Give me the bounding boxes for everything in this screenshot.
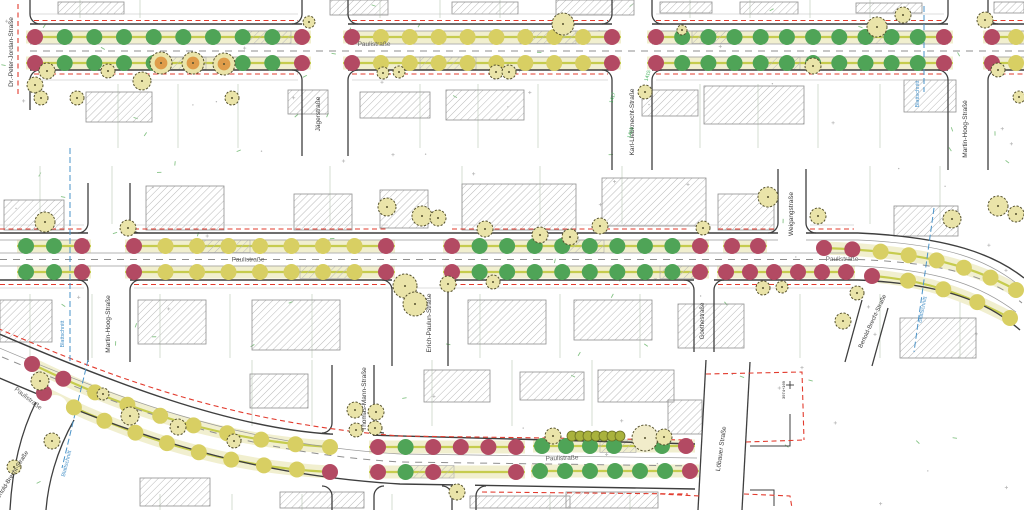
planting-spot-yellow	[159, 435, 175, 451]
planting-spot-red	[480, 439, 496, 455]
planting-spot-green	[86, 29, 102, 45]
tree-icon	[991, 63, 1005, 77]
survey-point	[898, 168, 899, 169]
planting-spot-red	[682, 463, 698, 479]
planting-spot-yellow	[315, 238, 331, 254]
tree-icon	[895, 7, 911, 23]
planting-spot-green	[532, 463, 548, 479]
tree-icon	[225, 91, 239, 105]
planting-spot-red	[444, 238, 460, 254]
tree-icon	[182, 52, 204, 74]
planting-spot-red	[378, 264, 394, 280]
planting-spot-green	[700, 55, 716, 71]
survey-cross-gray	[391, 153, 394, 156]
site-plan-drawing: PaulistraßePaulistraßePaulistraßePaulist…	[0, 0, 1024, 510]
planting-spot-red	[425, 464, 441, 480]
planting-spot-green	[831, 55, 847, 71]
parcel-number-label: 1415	[644, 69, 653, 82]
tree-icon	[696, 221, 710, 235]
building-footprint	[660, 2, 712, 13]
tree-icon	[810, 208, 826, 224]
building-footprint	[252, 300, 340, 350]
station-chainage-label: 3974+169	[781, 380, 786, 399]
building-footprint	[58, 2, 124, 14]
planting-spot-red	[984, 29, 1000, 45]
building-footprint	[740, 2, 798, 14]
planting-spot-green	[116, 55, 132, 71]
planting-spot-yellow	[956, 260, 972, 276]
planting-spot-yellow	[289, 462, 305, 478]
survey-cross-gray	[380, 81, 383, 84]
building-footprint	[146, 186, 224, 230]
street-label-paulistrasse: Paulistraße	[232, 257, 265, 264]
planting-spot-red	[74, 264, 90, 280]
planting-spot-green	[805, 29, 821, 45]
building-footprint	[250, 374, 308, 408]
planting-spot-red	[838, 264, 854, 280]
planting-spot-red	[790, 264, 806, 280]
curb-corner	[30, 14, 40, 24]
survey-tick-green	[958, 52, 960, 56]
tree-icon	[592, 218, 608, 234]
street-label-thomas-mann-strasse: Thomas-Mann-Straße	[361, 367, 368, 431]
survey-tick-green	[740, 376, 744, 378]
survey-point	[927, 470, 928, 471]
planting-spot-green	[637, 238, 653, 254]
survey-cross-gray	[77, 296, 80, 299]
planting-spot-yellow	[431, 29, 447, 45]
parcel-number-label: 1417	[609, 91, 618, 104]
planting-spot-green	[910, 29, 926, 45]
planting-spot-yellow	[488, 29, 504, 45]
survey-point	[425, 154, 426, 155]
building-footprint	[900, 318, 976, 358]
survey-point	[192, 104, 193, 105]
planting-spot-red	[378, 238, 394, 254]
survey-tick-green	[101, 47, 105, 49]
planting-spot-red	[27, 29, 43, 45]
planting-spot-red	[370, 439, 386, 455]
tree-icon	[502, 65, 516, 79]
planting-spot-yellow	[221, 238, 237, 254]
building-footprint	[360, 92, 430, 118]
planting-spot-yellow	[315, 264, 331, 280]
tree-icon	[31, 372, 49, 390]
planting-spot-red	[936, 29, 952, 45]
survey-cross-gray	[1001, 127, 1004, 130]
street-label-dr-peter-jordan-strasse: Dr.-Peter-Jordan-Straße	[8, 17, 15, 87]
curb-corner	[292, 70, 302, 80]
tree-icon	[39, 63, 55, 79]
building-footprint	[446, 90, 524, 120]
tree-icon	[403, 292, 427, 316]
planting-spot-red	[24, 356, 40, 372]
planting-spot-green	[235, 29, 251, 45]
planting-spot-yellow	[1008, 29, 1024, 45]
survey-cross-gray	[719, 45, 722, 48]
planting-spot-green	[398, 439, 414, 455]
street-label-paulistrasse: Paulistraße	[358, 41, 391, 48]
planting-spot-red	[294, 55, 310, 71]
building-footprint	[280, 492, 364, 508]
tree-icon	[368, 404, 384, 420]
planting-spot-green	[499, 238, 515, 254]
planting-spot-green	[607, 463, 623, 479]
planting-spot-green	[753, 29, 769, 45]
planting-spot-green	[116, 29, 132, 45]
planting-spot-yellow	[223, 452, 239, 468]
tree-icon	[412, 206, 432, 226]
tree-icon	[656, 429, 672, 445]
building-footprint	[288, 90, 328, 114]
tree-icon	[562, 229, 578, 245]
planting-spot-yellow	[873, 244, 889, 260]
curb-corner	[476, 486, 486, 496]
planting-spot-yellow	[253, 432, 269, 448]
tree-icon	[44, 433, 60, 449]
curb-corner	[806, 223, 816, 233]
survey-point	[700, 295, 701, 296]
planting-spot-red	[322, 464, 338, 480]
tree-icon	[850, 286, 864, 300]
road-line	[750, 490, 774, 506]
planting-spot-red	[816, 240, 832, 256]
survey-cross-gray	[472, 172, 475, 175]
tree-icon	[977, 12, 993, 28]
site-plan-canvas: PaulistraßePaulistraßePaulistraßePaulist…	[0, 0, 1024, 510]
planting-spot-green	[632, 463, 648, 479]
building-footprint	[994, 2, 1024, 13]
planting-spot-yellow	[969, 294, 985, 310]
planting-spot-red	[126, 238, 142, 254]
sheet-cut-label: Blattschnitt	[61, 450, 73, 478]
survey-tick-green	[1006, 160, 1009, 163]
planting-spot-green	[910, 55, 926, 71]
building-footprint	[140, 478, 210, 506]
planting-spot-green	[86, 55, 102, 71]
survey-point	[772, 83, 773, 84]
survey-tick-green	[332, 53, 336, 54]
survey-tick-green	[578, 352, 580, 356]
tree-icon	[213, 53, 235, 75]
survey-tick-green	[37, 481, 41, 483]
curb-corner	[602, 14, 612, 24]
survey-tick-green	[953, 438, 957, 439]
planting-spot-green	[657, 463, 673, 479]
building-footprint	[566, 492, 658, 508]
planting-spot-red	[742, 264, 758, 280]
survey-tick-green	[295, 114, 298, 117]
planting-spot-green	[398, 464, 414, 480]
planting-spot-green	[205, 29, 221, 45]
plan-limit-red-dashed	[744, 494, 792, 508]
planting-spot-red	[294, 29, 310, 45]
tree-icon	[378, 198, 396, 216]
planting-spot-red	[766, 264, 782, 280]
tree-icon	[1008, 206, 1024, 222]
survey-tick-green	[611, 294, 613, 298]
planting-spot-red	[508, 464, 524, 480]
tree-icon	[638, 85, 652, 99]
tree-icon	[1013, 91, 1024, 103]
street-label-weigangstrasse: Weigangstraße	[788, 192, 795, 236]
survey-tick-green	[858, 26, 862, 27]
survey-tick-green	[402, 398, 406, 399]
tree-icon	[486, 275, 500, 289]
planting-spot-red	[936, 55, 952, 71]
planting-spot-green	[779, 55, 795, 71]
planting-spot-yellow	[288, 436, 304, 452]
planting-spot-yellow	[322, 439, 338, 455]
planting-spot-green	[46, 264, 62, 280]
survey-cross-gray	[620, 419, 623, 422]
planting-spot-yellow	[252, 264, 268, 280]
tree-icon	[368, 421, 382, 435]
tree-icon	[677, 25, 687, 35]
building-footprint	[0, 300, 52, 342]
planting-spot-red	[453, 439, 469, 455]
planting-spot-yellow	[1008, 282, 1024, 298]
plan-limit-red-dashed	[746, 440, 804, 442]
building-footprint	[678, 304, 744, 348]
planting-spot-yellow	[575, 55, 591, 71]
planting-spot-green	[664, 238, 680, 254]
curb-corner	[374, 486, 384, 496]
planting-spot-yellow	[284, 264, 300, 280]
road-line	[742, 362, 750, 510]
tree-icon	[758, 187, 778, 207]
survey-point	[216, 101, 217, 102]
planting-spot-yellow	[158, 264, 174, 280]
tree-icon	[943, 210, 961, 228]
survey-tick-green	[135, 323, 136, 327]
tree-icon	[988, 196, 1008, 216]
planting-spot-yellow	[96, 413, 112, 429]
planting-spot-green	[582, 264, 598, 280]
tree-icon	[805, 58, 821, 74]
curb-corner	[938, 14, 948, 24]
survey-tick-green	[1, 65, 5, 66]
survey-point	[657, 463, 658, 464]
building-footprint	[668, 400, 702, 434]
road-line	[845, 300, 862, 362]
planting-spot-green	[499, 264, 515, 280]
planting-spot-red	[724, 238, 740, 254]
curb-corner	[938, 70, 948, 80]
tree-icon	[101, 64, 115, 78]
planting-spot-red	[814, 264, 830, 280]
tree-icon	[150, 52, 172, 74]
planting-spot-green	[582, 238, 598, 254]
planting-spot-red	[750, 238, 766, 254]
planting-spot-yellow	[256, 457, 272, 473]
survey-tick-green	[61, 197, 65, 198]
planting-spot-green	[264, 29, 280, 45]
tree-icon	[70, 91, 84, 105]
planting-spot-yellow	[284, 238, 300, 254]
tree-icon	[532, 227, 548, 243]
planting-spot-green	[727, 29, 743, 45]
tree-icon	[393, 66, 405, 78]
building-footprint	[598, 370, 674, 402]
tree-icon	[835, 313, 851, 329]
planting-spot-red	[126, 264, 142, 280]
survey-tick-green	[916, 441, 919, 444]
planting-spot-green	[779, 29, 795, 45]
planting-spot-green	[235, 55, 251, 71]
survey-cross-gray	[1010, 142, 1013, 145]
street-label-martin-hoog-strasse: Martin-Hoog-Straße	[105, 295, 112, 353]
tree-icon	[430, 210, 446, 226]
tree-icon	[303, 16, 315, 28]
survey-cross-gray	[206, 234, 209, 237]
planting-spot-yellow	[431, 55, 447, 71]
curb-corner	[652, 70, 662, 80]
tree-icon	[756, 281, 770, 295]
curb-corner	[348, 70, 358, 80]
tree-icon	[133, 72, 151, 90]
planting-spot-yellow	[221, 264, 237, 280]
survey-point	[795, 256, 796, 257]
street-label-paulistrasse: Paulistraße	[826, 256, 859, 263]
tree-icon	[489, 65, 503, 79]
planting-spot-red	[864, 268, 880, 284]
tree-icon	[34, 91, 48, 105]
planting-spot-green	[146, 29, 162, 45]
planting-spot-green	[582, 463, 598, 479]
planting-spot-green	[753, 55, 769, 71]
survey-cross-gray	[867, 305, 870, 308]
survey-point	[523, 427, 524, 428]
survey-point	[261, 151, 262, 152]
building-footprint	[856, 3, 922, 13]
survey-tick-green	[808, 380, 812, 381]
planting-spot-green	[609, 264, 625, 280]
planting-spot-green	[727, 55, 743, 71]
planting-spot-yellow	[158, 238, 174, 254]
planting-spot-red	[425, 439, 441, 455]
survey-cross-gray	[22, 99, 25, 102]
planting-spot-yellow	[983, 270, 999, 286]
survey-cross-gray	[243, 47, 246, 50]
tree-icon	[449, 484, 465, 500]
building-footprint	[468, 300, 546, 344]
survey-cross-gray	[1004, 269, 1007, 272]
planting-spot-yellow	[252, 238, 268, 254]
tree-icon	[121, 407, 139, 425]
building-footprint	[452, 2, 518, 14]
survey-point	[944, 186, 945, 187]
planting-spot-red	[718, 264, 734, 280]
planting-spot-yellow	[189, 264, 205, 280]
survey-tick-green	[554, 259, 555, 263]
survey-cross-gray	[605, 453, 608, 456]
planting-spot-green	[831, 29, 847, 45]
planting-spot-yellow	[460, 55, 476, 71]
tree-icon	[377, 67, 389, 79]
planting-spot-red	[344, 55, 360, 71]
planting-spot-red	[74, 238, 90, 254]
building-footprint	[470, 496, 570, 508]
tree-icon	[867, 17, 887, 37]
planting-spot-yellow	[460, 29, 476, 45]
survey-cross-gray	[342, 159, 345, 162]
survey-cross-gray	[832, 121, 835, 124]
planting-spot-green	[674, 55, 690, 71]
tree-icon	[170, 419, 186, 435]
planting-spot-yellow	[189, 238, 205, 254]
planting-spot-green	[554, 264, 570, 280]
planting-spot-green	[46, 238, 62, 254]
tree-icon	[440, 276, 456, 292]
building-footprint	[330, 0, 388, 15]
planting-spot-yellow	[347, 238, 363, 254]
building-footprint	[574, 300, 652, 340]
building-footprint	[138, 300, 206, 344]
planting-spot-green	[18, 264, 34, 280]
survey-tick-green	[113, 232, 117, 233]
planting-spot-red	[648, 55, 664, 71]
survey-tick-green	[644, 344, 648, 347]
planting-spot-red	[648, 29, 664, 45]
planting-spot-yellow	[347, 264, 363, 280]
planting-spot-red	[604, 55, 620, 71]
survey-tick-green	[43, 24, 45, 28]
tree-icon	[227, 434, 241, 448]
planting-spot-green	[527, 264, 543, 280]
planting-spot-yellow	[517, 55, 533, 71]
planting-spot-green	[472, 264, 488, 280]
road-line	[698, 360, 706, 510]
planting-spot-yellow	[901, 247, 917, 263]
planting-spot-green	[609, 238, 625, 254]
street-label-martin-hoog-strasse: Martin-Hoog-Straße	[962, 100, 969, 158]
survey-tick-green	[951, 127, 952, 131]
street-label-karl-liebknecht-strasse: Karl-Liebknecht-Straße	[629, 88, 636, 155]
survey-cross-gray	[1005, 486, 1008, 489]
survey-cross-gray	[528, 91, 531, 94]
survey-cross-gray	[800, 366, 803, 369]
planting-spot-green	[175, 29, 191, 45]
planting-spot-red	[678, 438, 694, 454]
planting-spot-green	[884, 55, 900, 71]
planting-spot-red	[508, 439, 524, 455]
building-footprint	[520, 372, 584, 400]
planting-spot-red	[692, 238, 708, 254]
street-label-jaegerstrasse: Jägerstraße	[315, 96, 322, 131]
planting-spot-green	[664, 264, 680, 280]
street-label-erich-paulun-strasse: Erich-Paulun-Straße	[426, 293, 433, 352]
planting-spot-red	[844, 241, 860, 257]
planting-spot-green	[858, 55, 874, 71]
survey-tick-green	[303, 75, 307, 77]
tree-icon	[477, 221, 493, 237]
curb-corner	[78, 223, 88, 233]
planting-spot-green	[472, 238, 488, 254]
planting-spot-yellow	[900, 273, 916, 289]
planting-spot-yellow	[935, 281, 951, 297]
tree-icon	[545, 428, 561, 444]
curb-corner	[292, 14, 302, 24]
street-label-goethestrasse: Goethestraße	[700, 302, 706, 339]
planting-spot-yellow	[127, 425, 143, 441]
curb-corner	[348, 14, 358, 24]
building-footprint	[4, 200, 64, 230]
building-footprint	[294, 194, 352, 230]
planting-spot-yellow	[1008, 55, 1024, 71]
planting-spot-red	[55, 371, 71, 387]
survey-tick-green	[144, 132, 146, 136]
